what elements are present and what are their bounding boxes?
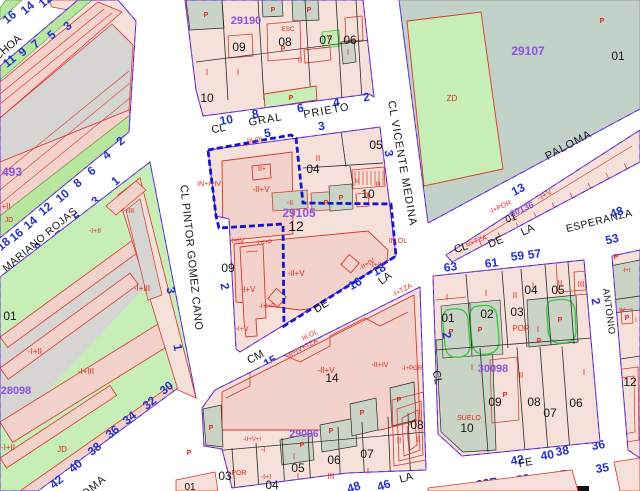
svg-text:I: I bbox=[206, 68, 208, 77]
svg-text:07: 07 bbox=[543, 406, 557, 420]
svg-text:-I+II: -I+II bbox=[1, 443, 15, 452]
svg-text:III: III bbox=[354, 179, 359, 185]
svg-text:ESC: ESC bbox=[281, 26, 295, 33]
svg-text:P: P bbox=[600, 18, 605, 25]
svg-text:I: I bbox=[367, 467, 369, 476]
svg-text:JD: JD bbox=[5, 217, 14, 224]
svg-text:01: 01 bbox=[441, 311, 455, 325]
svg-text:II: II bbox=[397, 436, 401, 445]
svg-text:06: 06 bbox=[343, 33, 357, 47]
svg-text:28098: 28098 bbox=[1, 385, 32, 397]
svg-text:III: III bbox=[375, 182, 380, 188]
svg-text:P: P bbox=[625, 315, 630, 322]
svg-text:-I+I: -I+I bbox=[261, 474, 271, 481]
svg-text:P: P bbox=[397, 397, 402, 404]
svg-text:29105: 29105 bbox=[282, 206, 316, 220]
svg-text:II: II bbox=[316, 154, 320, 163]
svg-text:29190: 29190 bbox=[231, 15, 262, 27]
svg-text:IV: IV bbox=[365, 195, 371, 201]
svg-text:P: P bbox=[558, 317, 563, 324]
svg-text:-II+V: -II+V bbox=[287, 269, 305, 278]
svg-text:-II+V+I: -II+V+I bbox=[243, 437, 261, 443]
svg-text:II: II bbox=[519, 371, 523, 380]
svg-text:-I+III: -I+III bbox=[78, 367, 94, 376]
svg-text:57: 57 bbox=[527, 246, 542, 262]
svg-text:IN.OL: IN.OL bbox=[389, 238, 407, 245]
svg-text:35: 35 bbox=[595, 460, 611, 476]
svg-text:493: 493 bbox=[2, 165, 22, 179]
svg-text:I: I bbox=[446, 293, 448, 302]
svg-text:P: P bbox=[307, 7, 312, 14]
svg-text:P: P bbox=[324, 200, 329, 207]
svg-text:03: 03 bbox=[510, 305, 524, 319]
svg-text:-II+IV: -II+IV bbox=[372, 362, 389, 369]
svg-text:01: 01 bbox=[3, 309, 17, 323]
svg-text:P: P bbox=[614, 254, 619, 261]
svg-text:JD: JD bbox=[57, 445, 67, 454]
svg-text:C: C bbox=[327, 35, 332, 42]
svg-text:II: II bbox=[298, 56, 302, 65]
svg-text:I: I bbox=[485, 289, 487, 298]
svg-text:P: P bbox=[537, 338, 542, 345]
svg-text:SUELO: SUELO bbox=[457, 415, 481, 422]
svg-text:61: 61 bbox=[484, 255, 499, 271]
svg-text:12: 12 bbox=[623, 375, 637, 389]
svg-text:-I+II: -I+II bbox=[89, 228, 101, 235]
svg-text:III: III bbox=[328, 472, 335, 481]
svg-text:ZD: ZD bbox=[447, 94, 458, 103]
svg-text:P: P bbox=[503, 392, 508, 399]
svg-text:P: P bbox=[271, 7, 276, 14]
svg-text:P: P bbox=[187, 450, 192, 457]
svg-text:59: 59 bbox=[510, 248, 525, 264]
svg-text:-I+POR: -I+POR bbox=[402, 366, 423, 372]
svg-text:06: 06 bbox=[327, 453, 341, 467]
svg-text:I: I bbox=[537, 325, 539, 334]
svg-text:II: II bbox=[558, 279, 562, 288]
svg-text:09: 09 bbox=[221, 261, 235, 275]
svg-text:29107: 29107 bbox=[511, 44, 545, 58]
svg-text:P: P bbox=[329, 428, 334, 435]
svg-text:I: I bbox=[417, 435, 419, 444]
svg-text:-I+III: -I+III bbox=[134, 284, 150, 293]
svg-text:I: I bbox=[347, 48, 349, 57]
svg-text:12: 12 bbox=[288, 218, 304, 234]
svg-text:-II+V: -II+V bbox=[252, 185, 270, 194]
svg-text:I: I bbox=[293, 452, 295, 461]
svg-text:09: 09 bbox=[488, 395, 502, 409]
svg-text:01: 01 bbox=[611, 49, 625, 63]
svg-text:03: 03 bbox=[218, 469, 232, 483]
svg-text:P: P bbox=[300, 442, 305, 449]
svg-text:02: 02 bbox=[480, 307, 494, 321]
svg-text:-I+V: -I+V bbox=[241, 285, 257, 294]
svg-text:-I+I+P: -I+I+P bbox=[256, 240, 272, 246]
svg-text:IN+I+IV: IN+I+IV bbox=[197, 181, 221, 188]
svg-text:IV: IV bbox=[619, 308, 625, 314]
svg-text:-I+I: -I+I bbox=[622, 268, 631, 274]
svg-text:P: P bbox=[281, 46, 286, 53]
svg-text:+II: +II bbox=[1, 202, 10, 211]
svg-text:P: P bbox=[204, 12, 209, 19]
svg-text:III: III bbox=[578, 280, 585, 289]
svg-text:POR: POR bbox=[231, 470, 246, 477]
svg-text:06: 06 bbox=[569, 396, 583, 410]
svg-text:I: I bbox=[583, 368, 585, 377]
svg-text:04: 04 bbox=[306, 162, 320, 176]
svg-text:I: I bbox=[532, 281, 534, 290]
svg-text:10: 10 bbox=[460, 421, 474, 435]
svg-text:-II+V: -II+V bbox=[317, 366, 335, 375]
svg-text:II+: II+ bbox=[258, 166, 266, 173]
svg-text:09: 09 bbox=[232, 40, 246, 54]
svg-text:P: P bbox=[339, 195, 344, 202]
svg-text:I: I bbox=[471, 363, 473, 372]
svg-text:01: 01 bbox=[184, 482, 196, 491]
svg-text:05: 05 bbox=[369, 138, 383, 152]
svg-text:II: II bbox=[513, 291, 517, 300]
svg-text:08: 08 bbox=[527, 395, 541, 409]
svg-text:I: I bbox=[237, 68, 239, 77]
svg-text:-I: -I bbox=[261, 447, 265, 454]
svg-text:I: I bbox=[297, 472, 299, 481]
svg-text:CL: CL bbox=[430, 370, 444, 386]
svg-text:30098: 30098 bbox=[478, 363, 509, 375]
svg-text:-I+I+P: -I+I+P bbox=[259, 304, 275, 310]
svg-text:P: P bbox=[360, 410, 365, 417]
svg-text:P: P bbox=[289, 95, 294, 102]
svg-text:-I+II: -I+II bbox=[28, 347, 42, 356]
svg-text:10: 10 bbox=[219, 112, 235, 128]
svg-text:40: 40 bbox=[540, 447, 556, 463]
svg-text:07: 07 bbox=[360, 447, 374, 461]
svg-text:63: 63 bbox=[443, 259, 458, 275]
svg-text:29096: 29096 bbox=[289, 428, 318, 440]
svg-text:-I+III: -I+III bbox=[120, 208, 134, 215]
svg-text:FE: FE bbox=[518, 456, 534, 470]
svg-text:POR: POR bbox=[512, 324, 530, 333]
svg-text:10: 10 bbox=[200, 91, 214, 105]
svg-text:08: 08 bbox=[410, 418, 424, 432]
svg-text:P: P bbox=[209, 425, 214, 432]
svg-text:P: P bbox=[478, 327, 483, 334]
svg-text:-I+IV: -I+IV bbox=[230, 238, 245, 245]
svg-text:-I+V: -I+V bbox=[235, 326, 248, 333]
